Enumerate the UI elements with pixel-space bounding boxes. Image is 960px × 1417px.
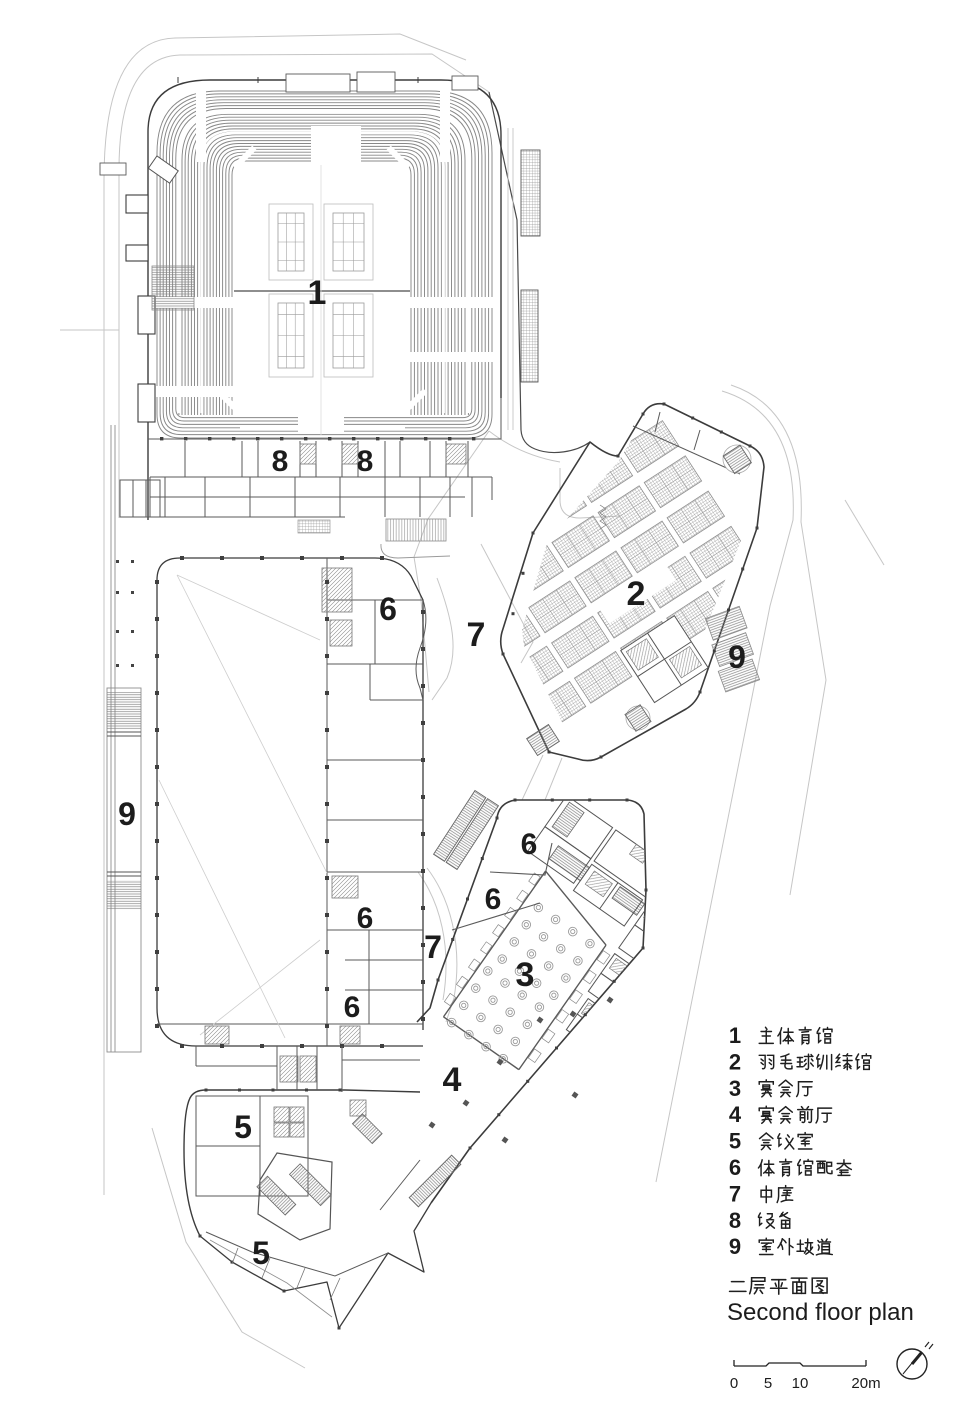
svg-text:8: 8: [729, 1208, 741, 1233]
svg-text:9: 9: [729, 1234, 741, 1259]
svg-text:6: 6: [379, 591, 397, 627]
svg-text:5: 5: [729, 1129, 741, 1154]
svg-text:6: 6: [485, 883, 502, 916]
svg-text:0: 0: [730, 1375, 738, 1392]
svg-text:8: 8: [357, 445, 374, 478]
svg-text:6: 6: [344, 991, 361, 1024]
svg-text:1: 1: [308, 274, 327, 312]
svg-text:5: 5: [234, 1109, 252, 1145]
svg-text:5: 5: [252, 1235, 270, 1271]
svg-text:8: 8: [272, 445, 289, 478]
svg-text:4: 4: [443, 1061, 462, 1099]
svg-text:6: 6: [729, 1155, 741, 1180]
svg-text:6: 6: [521, 828, 538, 861]
svg-text:2: 2: [729, 1049, 741, 1074]
svg-text:20m: 20m: [851, 1375, 880, 1392]
svg-text:Second floor plan: Second floor plan: [727, 1299, 914, 1326]
svg-text:3: 3: [729, 1076, 741, 1101]
svg-text:5: 5: [764, 1375, 772, 1392]
svg-text:9: 9: [118, 796, 136, 832]
svg-text:3: 3: [516, 956, 535, 994]
svg-text:7: 7: [467, 616, 486, 654]
svg-text:7: 7: [424, 929, 442, 965]
svg-text:1: 1: [729, 1023, 741, 1048]
svg-text:10: 10: [792, 1375, 809, 1392]
svg-text:4: 4: [729, 1102, 742, 1127]
svg-text:7: 7: [729, 1181, 741, 1206]
svg-text:2: 2: [627, 575, 646, 613]
svg-text:9: 9: [728, 639, 746, 675]
svg-text:6: 6: [357, 902, 374, 935]
